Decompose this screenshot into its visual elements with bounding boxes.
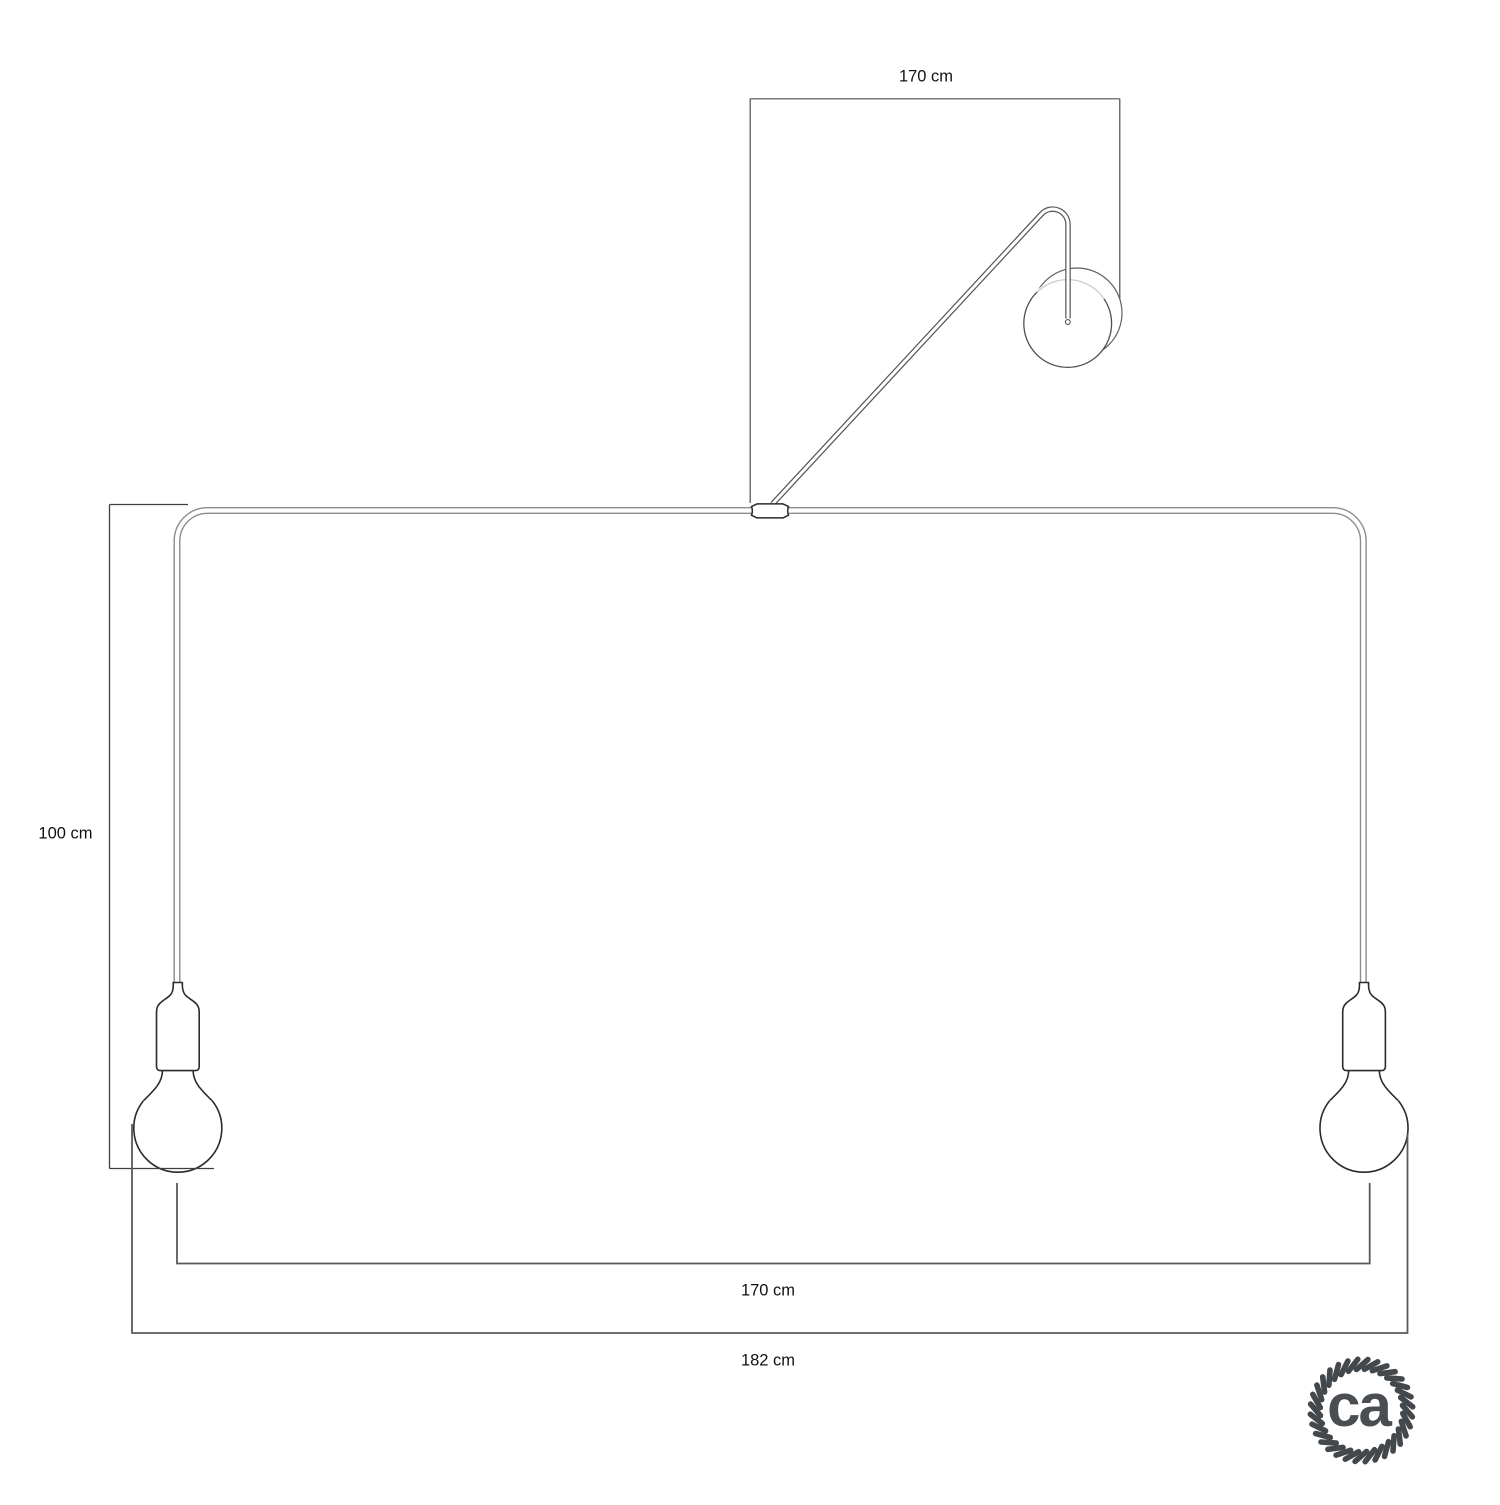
svg-text:ca: ca bbox=[1327, 1372, 1392, 1439]
svg-text:100 cm: 100 cm bbox=[38, 825, 92, 843]
svg-text:182 cm: 182 cm bbox=[741, 1352, 795, 1370]
svg-text:170 cm: 170 cm bbox=[899, 68, 953, 86]
svg-text:170 cm: 170 cm bbox=[741, 1282, 795, 1300]
